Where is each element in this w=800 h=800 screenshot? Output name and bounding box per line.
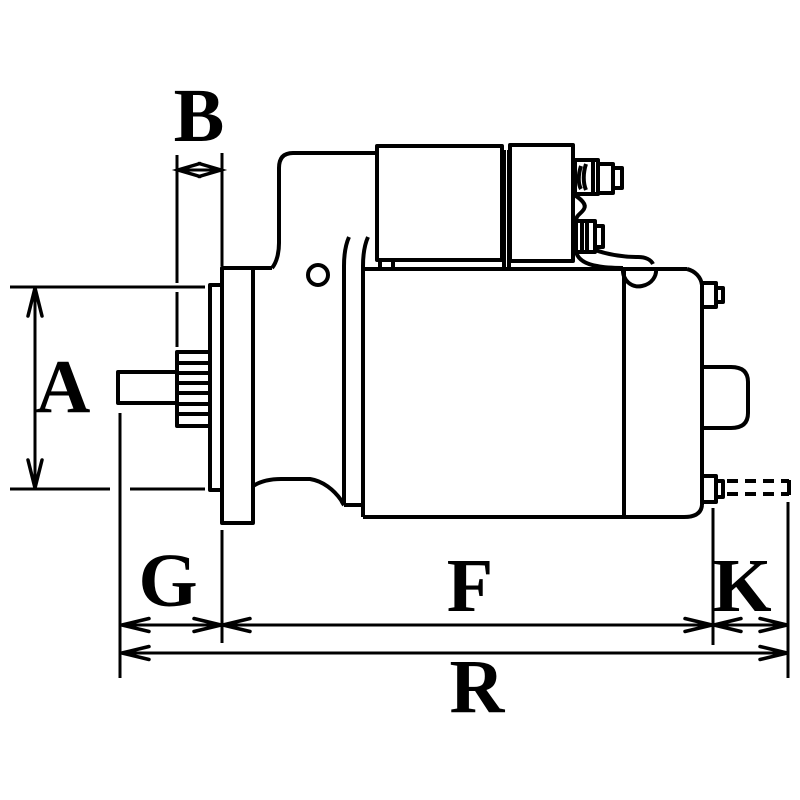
hidden-bolt-dashes [727,481,789,494]
dim-label-r: R [450,645,506,729]
solenoid-front-block [377,146,502,260]
machine-outline [118,145,789,523]
mounting-flange [222,268,253,523]
technical-drawing-page: A B G F K R [0,0,800,800]
lower-terminal-detail [582,221,587,252]
dim-label-g: G [138,539,197,623]
rear-top-bolt [702,283,716,307]
rear-bottom-bolt-tip [716,481,723,497]
motor-body-bottom [363,505,702,517]
upper-terminal-detail [579,160,593,194]
dim-label-a: A [36,345,91,429]
neck-line [344,237,363,505]
solenoid-body [510,145,573,261]
dim-label-f: F [447,544,493,628]
upper-terminal-bolt [598,164,613,193]
rear-top-bolt-tip [716,288,723,302]
lower-terminal-bolt [595,226,603,247]
bracket-hole [308,265,328,285]
dimension-b [177,153,222,347]
motor-body-left-edge [363,237,368,517]
starter-motor-technical-drawing: A B G F K R [0,0,800,800]
rear-bearing-boss [702,367,748,428]
drive-shaft [118,372,177,403]
motor-body-bevel [687,269,702,285]
drive-housing-top [253,153,377,268]
pinion-gear-teeth [177,363,210,414]
dim-label-b: B [174,74,225,158]
terminal-strap [595,250,653,264]
upper-terminal-bolt-tip [613,168,622,188]
dim-label-k: K [712,544,771,628]
drive-housing-bottom [253,479,344,505]
rear-bottom-bolt [702,476,716,502]
